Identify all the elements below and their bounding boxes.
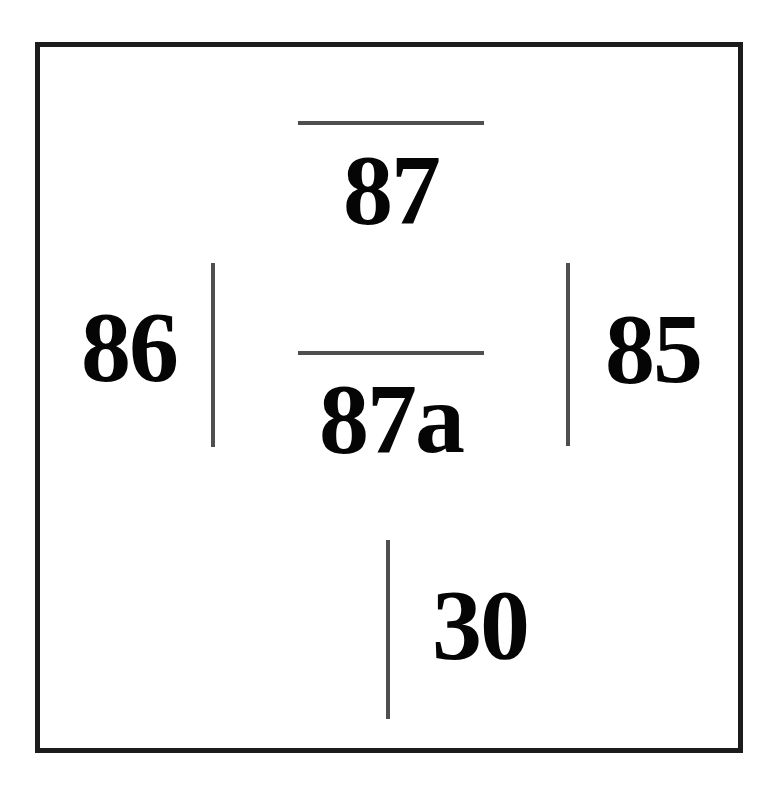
pin-87a-label: 87a: [298, 369, 484, 469]
pin-87-label: 87: [298, 140, 484, 240]
pin-87-blade-line: [298, 121, 484, 125]
pin-86-label: 86: [59, 297, 199, 397]
pin-30-label: 30: [410, 575, 550, 675]
relay-pinout-diagram: 87 86 85 87a 30: [0, 0, 782, 800]
pin-85-blade-line: [566, 263, 570, 446]
pin-87a-blade-line: [298, 351, 484, 355]
pin-30-blade-line: [386, 540, 390, 719]
diagram-layer: 87 86 85 87a 30: [0, 0, 782, 800]
pin-86-blade-line: [211, 263, 215, 447]
pin-85-label: 85: [583, 299, 723, 399]
